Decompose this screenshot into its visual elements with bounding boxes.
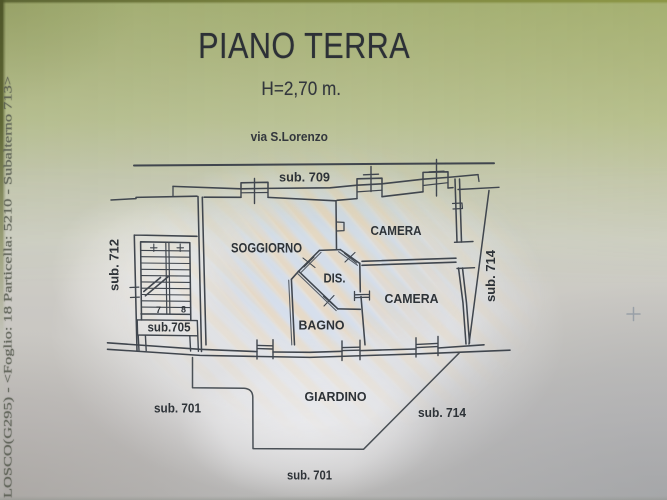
svg-text:sub. 709: sub. 709	[279, 170, 330, 185]
svg-text:7: 7	[156, 305, 161, 315]
svg-text:sub. 701: sub. 701	[154, 402, 201, 416]
svg-text:sub.705: sub.705	[148, 321, 191, 335]
svg-text:sub. 714: sub. 714	[484, 250, 498, 302]
svg-text:DIS.: DIS.	[324, 272, 346, 286]
svg-text:GIARDINO: GIARDINO	[305, 390, 367, 404]
svg-text:sub. 714: sub. 714	[418, 406, 466, 420]
svg-text:LOSCO(G295) - <Foglio: 18 Part: LOSCO(G295) - <Foglio: 18 Particella: 52…	[3, 76, 15, 498]
svg-text:sub. 701: sub. 701	[287, 469, 332, 483]
svg-text:sub. 712: sub. 712	[108, 239, 122, 291]
svg-text:CAMERA: CAMERA	[385, 292, 439, 306]
svg-text:BAGNO: BAGNO	[299, 318, 345, 333]
svg-text:CAMERA: CAMERA	[371, 224, 422, 238]
svg-text:8: 8	[181, 305, 186, 315]
svg-text:SOGGIORNO: SOGGIORNO	[231, 241, 302, 256]
